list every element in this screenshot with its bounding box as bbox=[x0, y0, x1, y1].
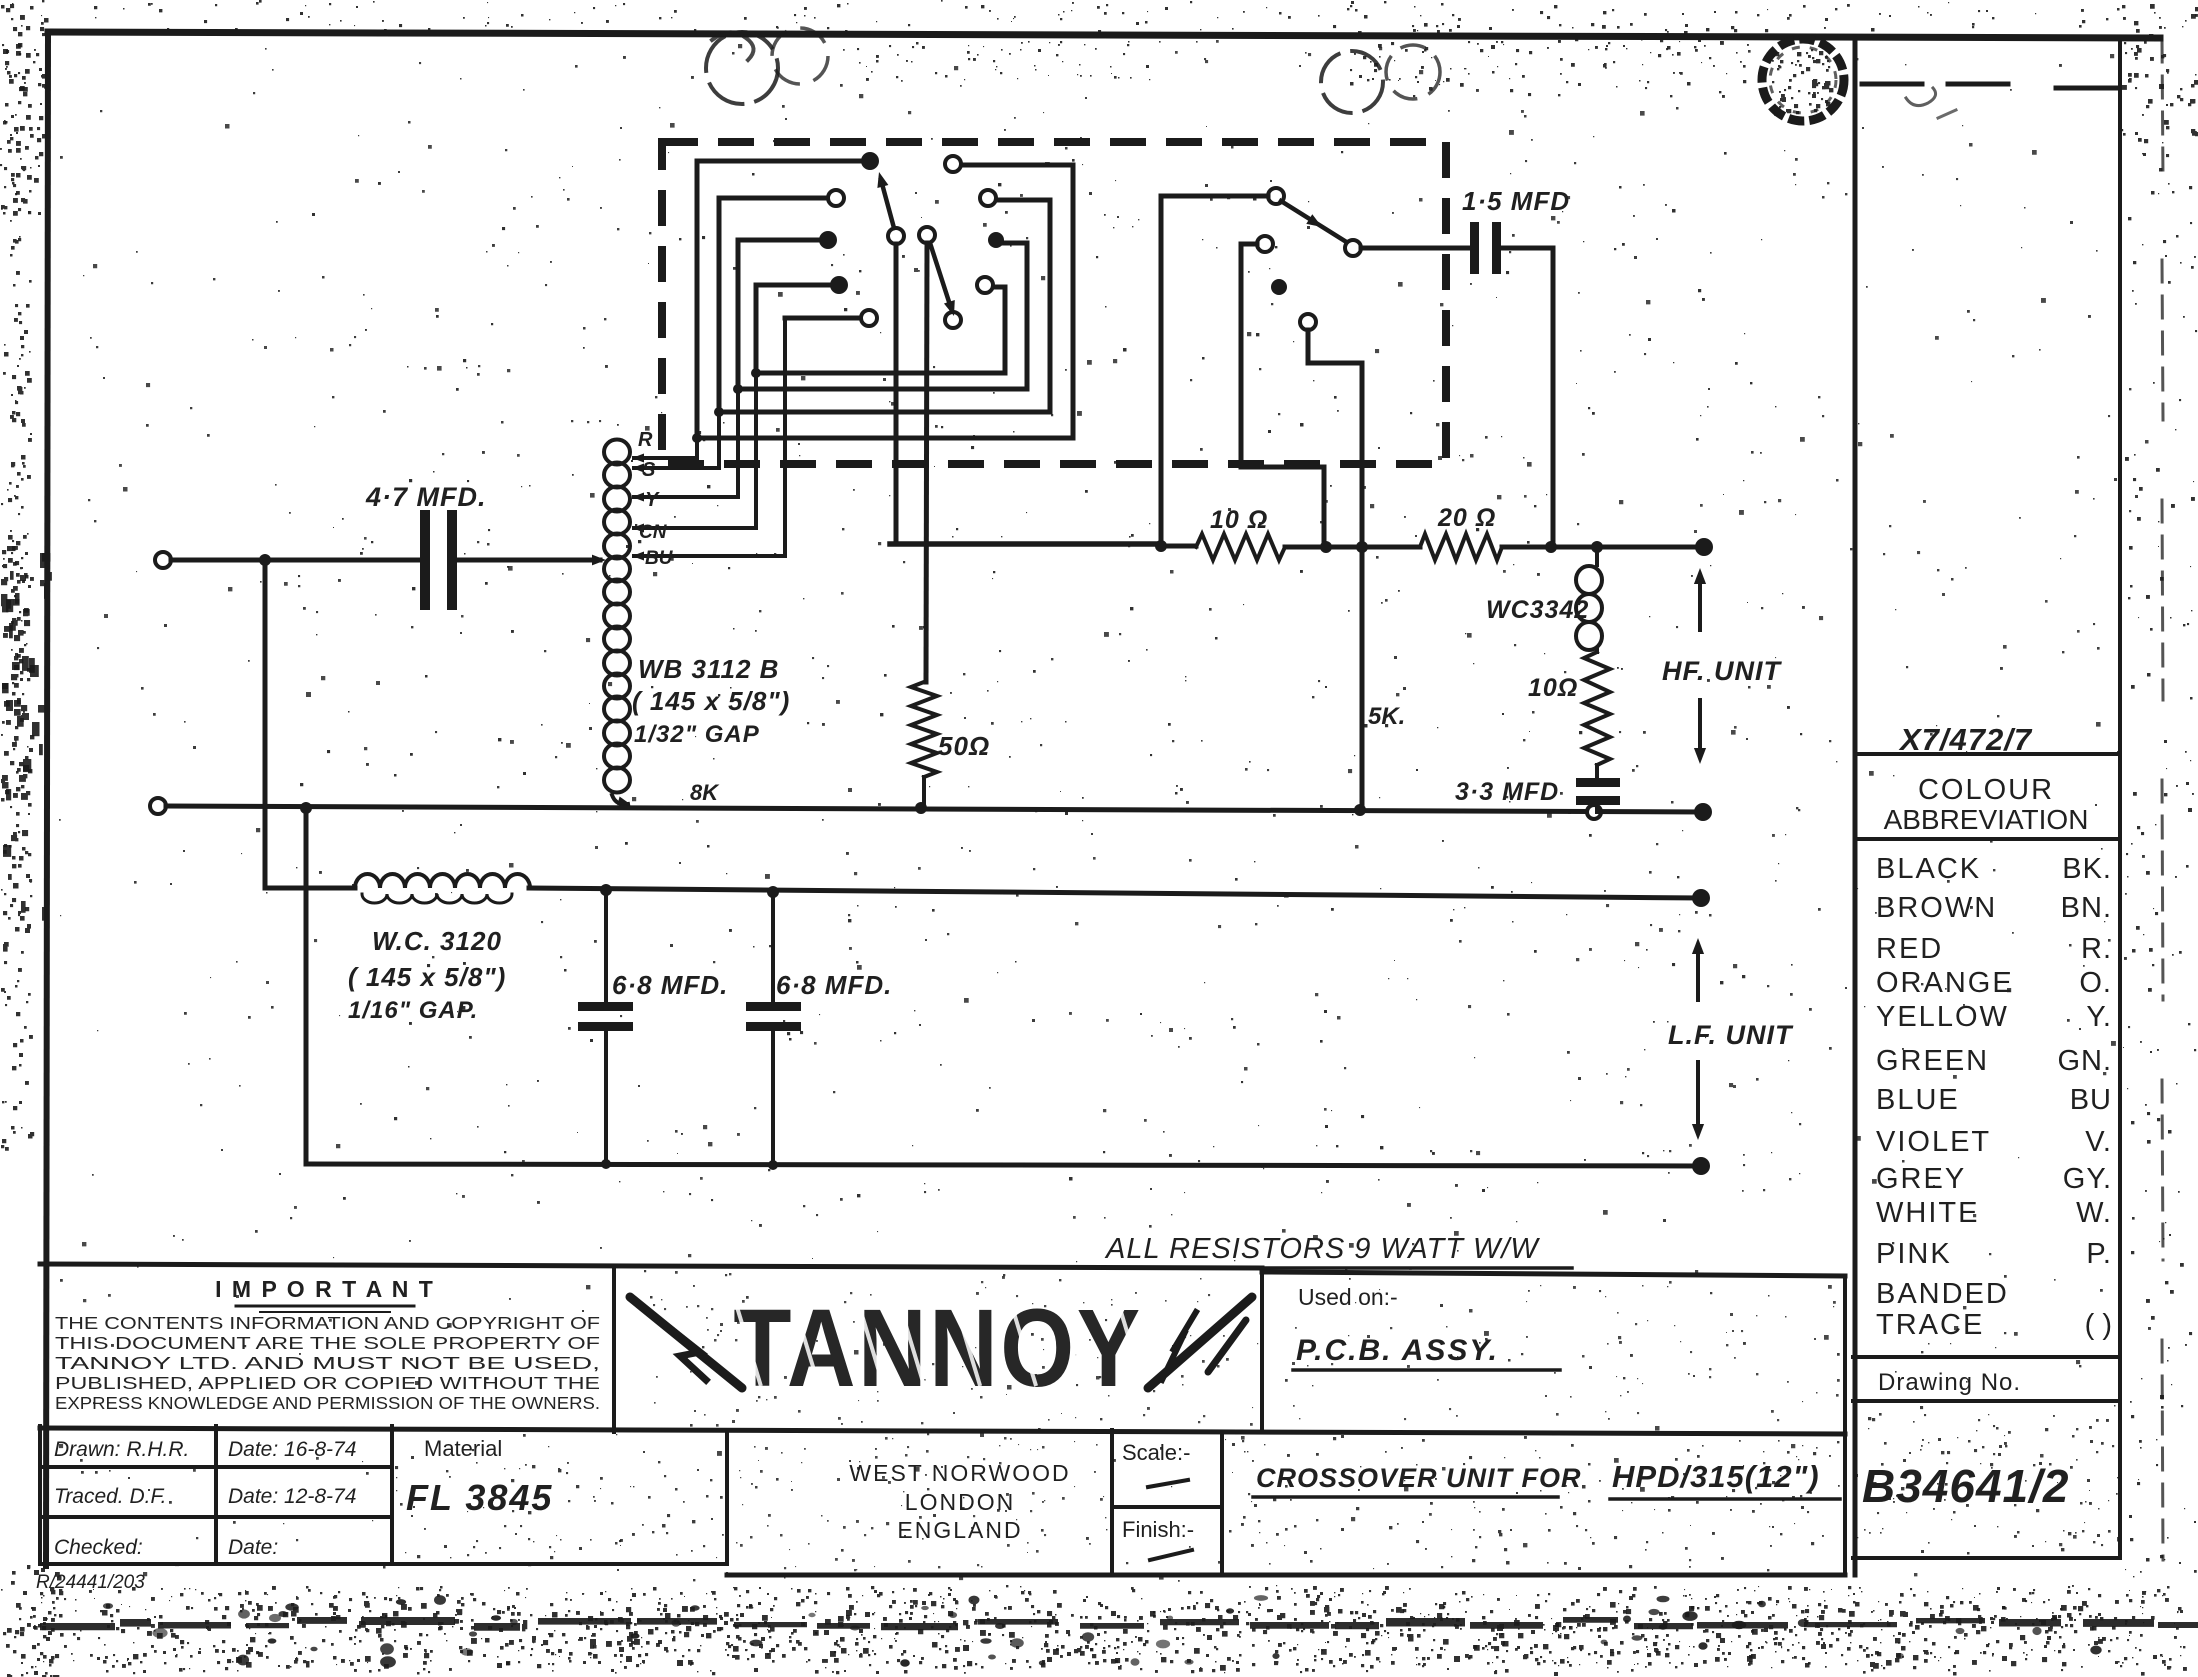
svg-text:EXPRESS KNOWLEDGE AND PERMISSI: EXPRESS KNOWLEDGE AND PERMISSION OF THE … bbox=[55, 1393, 600, 1413]
svg-text:WHITE: WHITE bbox=[1876, 1197, 1979, 1229]
svg-text:3·3 MFD: 3·3 MFD bbox=[1455, 778, 1559, 806]
svg-text:CROSSOVER UNIT FOR: CROSSOVER UNIT FOR bbox=[1256, 1463, 1582, 1493]
svg-text:R.: R. bbox=[2081, 933, 2112, 965]
svg-text:R/24441/203: R/24441/203 bbox=[36, 1572, 145, 1593]
svg-text:1/32" GAP: 1/32" GAP bbox=[634, 721, 760, 748]
svg-text:Checked:: Checked: bbox=[54, 1536, 143, 1559]
svg-text:4·7 MFD.: 4·7 MFD. bbox=[365, 482, 487, 512]
svg-text:GY.: GY. bbox=[2063, 1163, 2112, 1195]
svg-text:P.C.B. ASSY.: P.C.B. ASSY. bbox=[1296, 1334, 1499, 1367]
svg-text:P.: P. bbox=[2086, 1238, 2112, 1270]
svg-text:S: S bbox=[642, 459, 656, 481]
svg-text:I M P O R T A N T: I M P O R T A N T bbox=[215, 1276, 435, 1302]
svg-text:BLUE: BLUE bbox=[1876, 1084, 1960, 1116]
svg-text:TRACE: TRACE bbox=[1876, 1309, 1984, 1341]
svg-text:50Ω: 50Ω bbox=[938, 731, 990, 761]
svg-text:GREY: GREY bbox=[1876, 1163, 1966, 1195]
svg-text:1·5 MFD: 1·5 MFD bbox=[1462, 186, 1570, 216]
svg-text:Material: Material bbox=[424, 1436, 502, 1461]
svg-text:( 145 x 5/8"): ( 145 x 5/8") bbox=[348, 962, 506, 992]
svg-text:Used on:-: Used on:- bbox=[1298, 1284, 1398, 1310]
svg-text:TANNOY LTD. AND MUST: TANNOY LTD. AND MUST NOT BE USED, bbox=[55, 1353, 600, 1373]
svg-text:FL 3845: FL 3845 bbox=[406, 1477, 553, 1518]
svg-text:Scale:-: Scale:- bbox=[1122, 1440, 1190, 1465]
svg-text:Date:: Date: bbox=[228, 1536, 278, 1559]
svg-text:ORANGE: ORANGE bbox=[1876, 967, 2014, 999]
svg-text:8K: 8K bbox=[690, 780, 720, 805]
svg-text:RED: RED bbox=[1876, 933, 1943, 965]
svg-text:X7/472/7: X7/472/7 bbox=[1898, 722, 2033, 757]
svg-text:ABBREVIATION: ABBREVIATION bbox=[1884, 804, 2089, 835]
svg-text:R: R bbox=[638, 429, 653, 451]
svg-text:WB 3112 B: WB 3112 B bbox=[638, 654, 779, 684]
svg-text:THIS DOCUMENT ARE THE SOLE: THIS DOCUMENT ARE THE SOLE PROPERTY OF bbox=[55, 1333, 600, 1353]
svg-text:BN.: BN. bbox=[2061, 892, 2112, 924]
svg-text:ENGLAND: ENGLAND bbox=[897, 1517, 1022, 1543]
svg-text:COLOUR: COLOUR bbox=[1918, 774, 2054, 806]
svg-text:BLACK: BLACK bbox=[1876, 853, 1981, 885]
svg-text:6·8 MFD.: 6·8 MFD. bbox=[776, 970, 892, 1000]
svg-text:W.C. 3120: W.C. 3120 bbox=[372, 926, 502, 956]
svg-text:Drawing No.: Drawing No. bbox=[1878, 1369, 2021, 1396]
svg-text:CN: CN bbox=[639, 522, 668, 543]
svg-text:6·8 MFD.: 6·8 MFD. bbox=[612, 970, 728, 1000]
svg-text:HF. UNIT: HF. UNIT bbox=[1662, 656, 1783, 686]
svg-text:VIOLET: VIOLET bbox=[1876, 1126, 1991, 1158]
svg-text:THE CONTENTS INFORMATION AN: THE CONTENTS INFORMATION AND COPYRIGHT O… bbox=[55, 1313, 600, 1333]
svg-text:BK.: BK. bbox=[2062, 853, 2112, 885]
svg-text:5K.: 5K. bbox=[1368, 703, 1405, 730]
svg-text:WC3342: WC3342 bbox=[1486, 596, 1589, 624]
svg-text:Date: 12-8-74: Date: 12-8-74 bbox=[228, 1485, 356, 1508]
svg-text:Y.: Y. bbox=[2086, 1001, 2112, 1033]
svg-text:BU: BU bbox=[645, 548, 674, 569]
svg-text:GREEN: GREEN bbox=[1876, 1045, 1989, 1077]
svg-text:YELLOW: YELLOW bbox=[1876, 1001, 2009, 1033]
svg-text:O.: O. bbox=[2079, 967, 2112, 999]
svg-text:B34641/2: B34641/2 bbox=[1862, 1460, 2070, 1512]
svg-text:Y: Y bbox=[645, 489, 660, 511]
svg-text:Traced. D.F.: Traced. D.F. bbox=[54, 1485, 166, 1508]
svg-text:Drawn: R.H.R.: Drawn: R.H.R. bbox=[54, 1438, 189, 1461]
svg-text:GN.: GN. bbox=[2057, 1045, 2112, 1077]
svg-text:( 145 x 5/8"): ( 145 x 5/8") bbox=[632, 686, 790, 716]
svg-text:W.: W. bbox=[2076, 1197, 2112, 1229]
svg-text:Date: 16-8-74: Date: 16-8-74 bbox=[228, 1438, 356, 1461]
svg-text:10Ω: 10Ω bbox=[1528, 674, 1578, 702]
svg-text:HPD/315(12"): HPD/315(12") bbox=[1612, 1459, 1820, 1494]
svg-text:L.F. UNIT: L.F. UNIT bbox=[1668, 1020, 1794, 1050]
svg-text:LONDON: LONDON bbox=[905, 1489, 1015, 1515]
svg-text:20 Ω: 20 Ω bbox=[1437, 504, 1496, 532]
svg-text:WEST NORWOOD: WEST NORWOOD bbox=[849, 1460, 1070, 1486]
svg-text:V.: V. bbox=[2085, 1126, 2112, 1158]
svg-text:BANDED: BANDED bbox=[1876, 1278, 2009, 1310]
svg-text:1/16" GAP.: 1/16" GAP. bbox=[348, 997, 478, 1024]
svg-text:BROWN: BROWN bbox=[1876, 892, 1997, 924]
svg-text:( ): ( ) bbox=[2085, 1309, 2112, 1341]
svg-text:PINK: PINK bbox=[1876, 1238, 1952, 1270]
svg-text:ALL RESISTORS 9 WATT W/W: ALL RESISTORS 9 WATT W/W bbox=[1104, 1233, 1540, 1265]
svg-text:10 Ω: 10 Ω bbox=[1210, 506, 1268, 534]
svg-text:Finish:-: Finish:- bbox=[1122, 1517, 1194, 1542]
svg-text:PUBLISHED, APPLIED OR CO: PUBLISHED, APPLIED OR COPIED WITHOUT THE bbox=[55, 1373, 600, 1393]
svg-text:BU: BU bbox=[2070, 1084, 2112, 1116]
